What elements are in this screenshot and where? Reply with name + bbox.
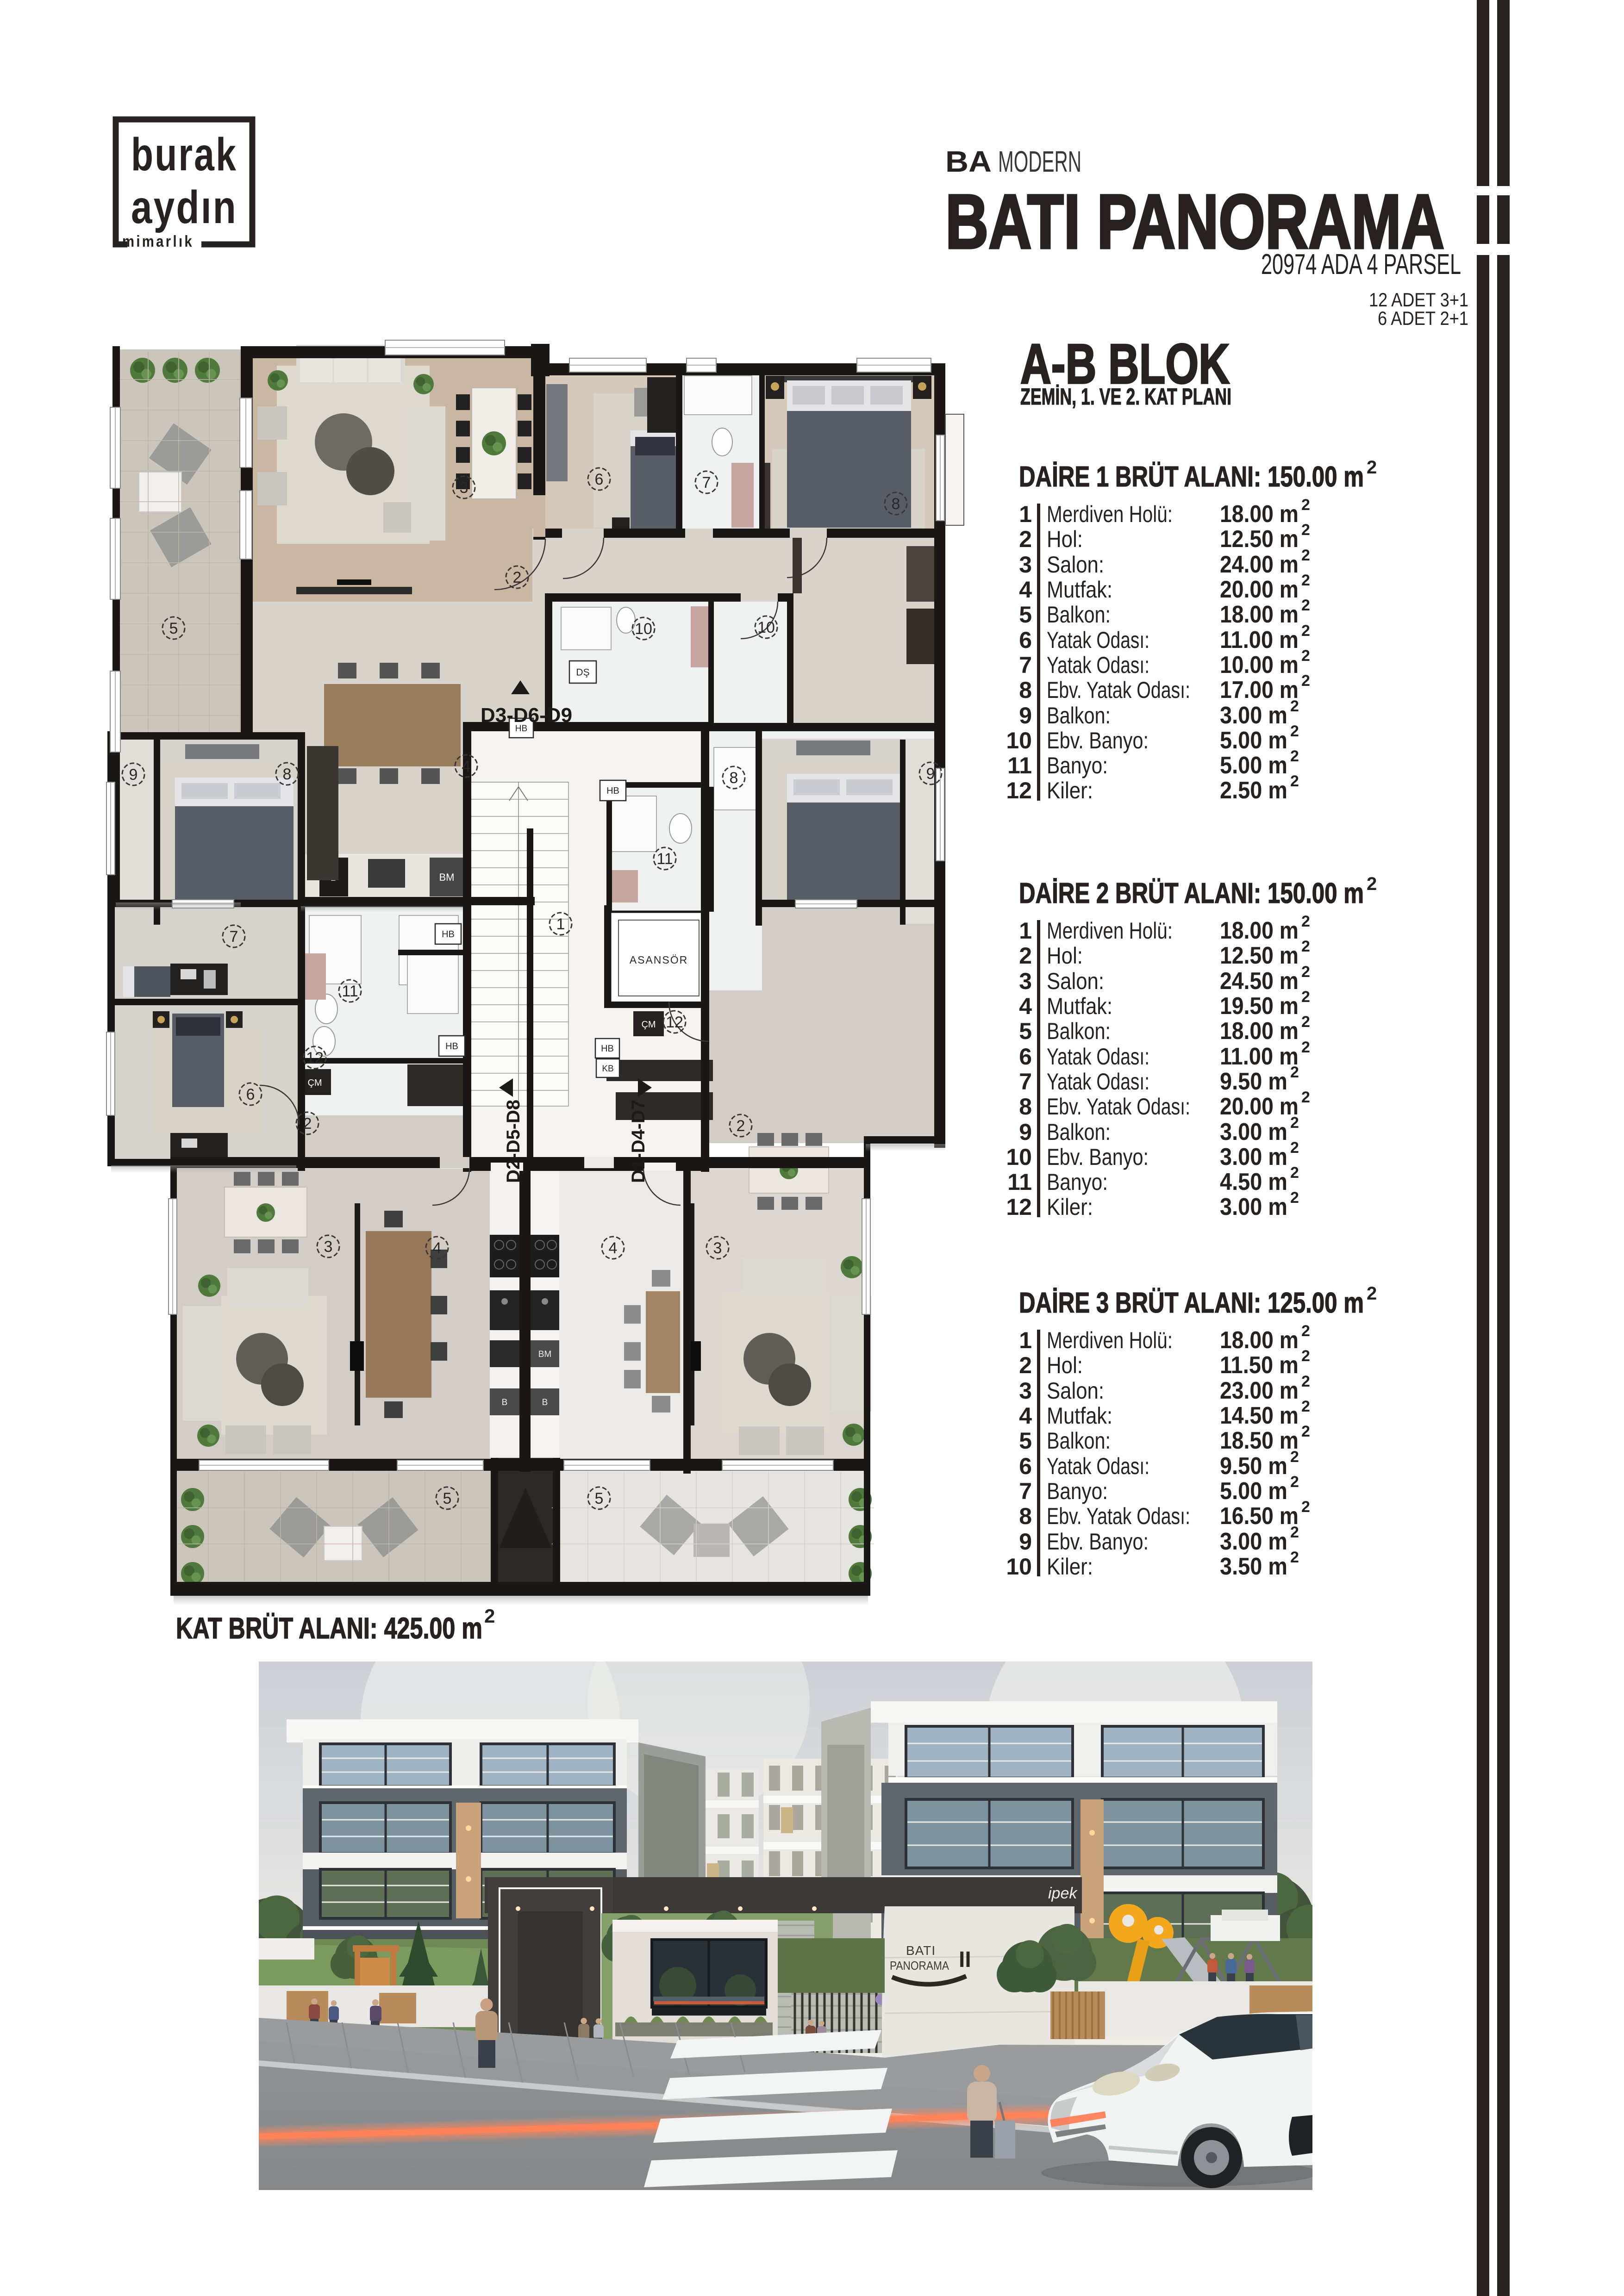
svg-text:Ebv. Banyo:: Ebv. Banyo: bbox=[1047, 728, 1149, 753]
svg-text:Merdiven Holü:: Merdiven Holü: bbox=[1047, 1327, 1173, 1353]
svg-text:8: 8 bbox=[283, 765, 292, 783]
svg-text:2: 2 bbox=[1290, 1473, 1299, 1491]
svg-text:18.00 m: 18.00 m bbox=[1220, 1018, 1299, 1045]
svg-text:HB: HB bbox=[601, 1044, 614, 1054]
svg-text:HB: HB bbox=[442, 929, 455, 940]
svg-text:5.00 m: 5.00 m bbox=[1220, 1478, 1287, 1505]
svg-text:Hol:: Hol: bbox=[1047, 526, 1083, 552]
svg-text:D2-D5-D8: D2-D5-D8 bbox=[503, 1100, 524, 1183]
svg-text:DAİRE 2 BRÜT ALANI: 150.00 m: DAİRE 2 BRÜT ALANI: 150.00 m bbox=[1019, 877, 1364, 909]
svg-text:Yatak Odası:: Yatak Odası: bbox=[1047, 1069, 1149, 1095]
svg-text:2: 2 bbox=[1301, 622, 1310, 640]
svg-text:Kiler:: Kiler: bbox=[1047, 1194, 1093, 1220]
svg-text:2: 2 bbox=[1301, 647, 1310, 665]
svg-text:2: 2 bbox=[1301, 1423, 1310, 1440]
svg-text:2: 2 bbox=[1301, 988, 1310, 1006]
svg-text:Ebv. Banyo:: Ebv. Banyo: bbox=[1047, 1144, 1149, 1170]
svg-text:BM: BM bbox=[538, 1350, 552, 1359]
svg-text:24.50 m: 24.50 m bbox=[1220, 968, 1299, 995]
svg-text:2: 2 bbox=[1301, 1013, 1310, 1031]
svg-text:8: 8 bbox=[1019, 1094, 1032, 1120]
svg-text:9: 9 bbox=[926, 765, 935, 783]
svg-text:HB: HB bbox=[445, 1041, 458, 1052]
svg-text:20.00 m: 20.00 m bbox=[1220, 576, 1299, 603]
svg-text:Banyo:: Banyo: bbox=[1047, 753, 1108, 778]
svg-text:2: 2 bbox=[303, 1115, 312, 1132]
svg-text:Mutfak:: Mutfak: bbox=[1047, 577, 1112, 603]
svg-text:5: 5 bbox=[443, 1490, 452, 1507]
svg-text:2: 2 bbox=[737, 1117, 745, 1135]
svg-text:2: 2 bbox=[1301, 1498, 1310, 1516]
svg-text:Ebv. Yatak Odası:: Ebv. Yatak Odası: bbox=[1047, 677, 1190, 703]
svg-text:Mutfak:: Mutfak: bbox=[1047, 1403, 1112, 1429]
svg-text:4: 4 bbox=[433, 1239, 442, 1257]
svg-text:Hol:: Hol: bbox=[1047, 1352, 1083, 1378]
svg-text:10: 10 bbox=[1006, 1144, 1032, 1170]
svg-text:7: 7 bbox=[1019, 1478, 1032, 1504]
svg-text:BATI: BATI bbox=[906, 1943, 936, 1958]
svg-text:2: 2 bbox=[1290, 1549, 1299, 1566]
svg-text:2: 2 bbox=[1301, 913, 1310, 930]
svg-text:ÇM: ÇM bbox=[641, 1020, 656, 1030]
svg-text:2: 2 bbox=[1290, 1524, 1299, 1541]
svg-text:2: 2 bbox=[1019, 526, 1032, 552]
svg-text:2: 2 bbox=[1301, 1322, 1310, 1340]
svg-text:Salon:: Salon: bbox=[1047, 552, 1104, 578]
svg-text:10: 10 bbox=[635, 620, 652, 638]
svg-text:ASANSÖR: ASANSÖR bbox=[630, 954, 688, 966]
svg-text:5.00 m: 5.00 m bbox=[1220, 727, 1287, 754]
svg-text:2: 2 bbox=[1301, 963, 1310, 981]
svg-text:2: 2 bbox=[1290, 1114, 1299, 1132]
svg-text:24.00 m: 24.00 m bbox=[1220, 551, 1299, 578]
svg-text:Balkon:: Balkon: bbox=[1047, 602, 1111, 628]
svg-text:5: 5 bbox=[1019, 1428, 1032, 1454]
svg-text:HB: HB bbox=[606, 786, 619, 796]
svg-text:2: 2 bbox=[1290, 772, 1299, 790]
svg-text:Yatak Odası:: Yatak Odası: bbox=[1047, 652, 1149, 678]
svg-text:10: 10 bbox=[1006, 728, 1032, 753]
svg-text:12: 12 bbox=[666, 1014, 683, 1031]
svg-text:3: 3 bbox=[1019, 1378, 1032, 1404]
svg-text:11.00 m: 11.00 m bbox=[1220, 1043, 1299, 1070]
svg-text:1: 1 bbox=[1019, 1327, 1032, 1353]
svg-text:5: 5 bbox=[595, 1490, 604, 1507]
svg-text:5: 5 bbox=[1019, 602, 1032, 628]
svg-text:11.00 m: 11.00 m bbox=[1220, 627, 1299, 653]
svg-text:3.00 m: 3.00 m bbox=[1220, 1144, 1287, 1170]
svg-text:Yatak Odası:: Yatak Odası: bbox=[1047, 627, 1149, 653]
svg-text:2: 2 bbox=[1290, 747, 1299, 765]
svg-text:Banyo:: Banyo: bbox=[1047, 1169, 1108, 1195]
svg-text:1: 1 bbox=[1019, 501, 1032, 527]
svg-text:3.00 m: 3.00 m bbox=[1220, 1194, 1287, 1220]
svg-text:10.00 m: 10.00 m bbox=[1220, 652, 1299, 678]
svg-text:2: 2 bbox=[1301, 1089, 1310, 1106]
svg-text:Salon:: Salon: bbox=[1047, 968, 1104, 994]
svg-text:4: 4 bbox=[1019, 577, 1032, 603]
svg-text:2: 2 bbox=[1301, 1373, 1310, 1390]
svg-text:KB: KB bbox=[602, 1064, 613, 1074]
svg-text:2: 2 bbox=[1290, 697, 1299, 715]
svg-text:BA: BA bbox=[945, 145, 992, 178]
svg-text:BM: BM bbox=[439, 871, 455, 883]
svg-text:Balkon:: Balkon: bbox=[1047, 703, 1111, 728]
svg-text:2: 2 bbox=[1019, 1352, 1032, 1378]
svg-text:5.00 m: 5.00 m bbox=[1220, 752, 1287, 779]
svg-text:Merdiven Holü:: Merdiven Holü: bbox=[1047, 918, 1173, 944]
svg-text:12.50 m: 12.50 m bbox=[1220, 942, 1299, 969]
svg-text:D3-D6-D9: D3-D6-D9 bbox=[481, 704, 572, 727]
svg-text:3: 3 bbox=[460, 479, 468, 497]
svg-text:Salon:: Salon: bbox=[1047, 1378, 1104, 1404]
svg-text:4: 4 bbox=[609, 1239, 618, 1257]
svg-text:Ebv. Yatak Odası:: Ebv. Yatak Odası: bbox=[1047, 1503, 1190, 1529]
svg-text:6: 6 bbox=[595, 471, 604, 488]
svg-text:9.50 m: 9.50 m bbox=[1220, 1453, 1287, 1480]
svg-text:6: 6 bbox=[1019, 627, 1032, 653]
svg-text:3: 3 bbox=[713, 1239, 722, 1257]
svg-text:Kiler:: Kiler: bbox=[1047, 778, 1093, 803]
svg-text:18.00 m: 18.00 m bbox=[1220, 501, 1299, 528]
svg-text:9.50 m: 9.50 m bbox=[1220, 1068, 1287, 1095]
svg-text:3: 3 bbox=[1019, 968, 1032, 994]
svg-text:3: 3 bbox=[324, 1238, 333, 1256]
svg-text:mimarlık: mimarlık bbox=[122, 233, 194, 250]
svg-text:2: 2 bbox=[1019, 943, 1032, 969]
svg-text:11: 11 bbox=[1007, 753, 1032, 778]
svg-text:9: 9 bbox=[1019, 1119, 1032, 1145]
svg-text:12.50 m: 12.50 m bbox=[1220, 526, 1299, 553]
svg-text:2: 2 bbox=[1290, 1064, 1299, 1081]
svg-text:Kiler:: Kiler: bbox=[1047, 1554, 1093, 1580]
svg-text:18.50 m: 18.50 m bbox=[1220, 1427, 1299, 1454]
svg-text:2: 2 bbox=[1301, 938, 1310, 955]
svg-text:19.50 m: 19.50 m bbox=[1220, 993, 1299, 1020]
svg-text:3.50 m: 3.50 m bbox=[1220, 1553, 1287, 1580]
svg-text:10: 10 bbox=[1006, 1554, 1032, 1580]
svg-text:KAT BRÜT ALANI: 425.00 m: KAT BRÜT ALANI: 425.00 m bbox=[176, 1612, 482, 1645]
svg-text:18.00 m: 18.00 m bbox=[1220, 601, 1299, 628]
svg-text:Merdiven Holü:: Merdiven Holü: bbox=[1047, 501, 1173, 527]
svg-text:Balkon:: Balkon: bbox=[1047, 1018, 1111, 1044]
svg-text:18.00 m: 18.00 m bbox=[1220, 1327, 1299, 1354]
svg-text:3: 3 bbox=[1019, 552, 1032, 578]
svg-text:2: 2 bbox=[484, 1605, 495, 1627]
svg-text:2: 2 bbox=[1367, 874, 1377, 894]
svg-text:5: 5 bbox=[1019, 1018, 1032, 1044]
svg-text:2: 2 bbox=[1367, 1283, 1377, 1304]
svg-text:23.00 m: 23.00 m bbox=[1220, 1377, 1299, 1404]
svg-text:3.00 m: 3.00 m bbox=[1220, 702, 1287, 729]
svg-text:II: II bbox=[959, 1948, 971, 1972]
svg-text:2: 2 bbox=[1301, 496, 1310, 514]
svg-text:2: 2 bbox=[1301, 572, 1310, 589]
svg-text:12: 12 bbox=[1006, 1194, 1032, 1220]
svg-text:20974 ADA 4 PARSEL: 20974 ADA 4 PARSEL bbox=[1261, 249, 1461, 280]
svg-text:burak: burak bbox=[131, 129, 237, 180]
svg-text:12: 12 bbox=[1006, 778, 1032, 803]
svg-text:6: 6 bbox=[1019, 1044, 1032, 1070]
svg-text:9: 9 bbox=[129, 766, 138, 784]
svg-text:12: 12 bbox=[306, 1049, 324, 1067]
svg-text:2: 2 bbox=[1367, 457, 1377, 478]
svg-text:Hol:: Hol: bbox=[1047, 943, 1083, 969]
svg-text:1: 1 bbox=[1019, 918, 1032, 944]
svg-text:1: 1 bbox=[556, 915, 565, 933]
svg-text:8: 8 bbox=[730, 769, 738, 787]
svg-text:Balkon:: Balkon: bbox=[1047, 1119, 1111, 1145]
svg-text:20.00 m: 20.00 m bbox=[1220, 1093, 1299, 1120]
svg-text:4: 4 bbox=[1019, 1403, 1032, 1429]
svg-text:2: 2 bbox=[513, 569, 522, 586]
svg-text:aydın: aydın bbox=[131, 181, 237, 233]
svg-text:8: 8 bbox=[1019, 677, 1032, 703]
svg-text:2: 2 bbox=[1301, 521, 1310, 539]
svg-text:11: 11 bbox=[656, 850, 673, 868]
svg-text:6 ADET 2+1: 6 ADET 2+1 bbox=[1378, 307, 1468, 329]
svg-text:9: 9 bbox=[1019, 1529, 1032, 1555]
svg-text:Ebv. Yatak Odası:: Ebv. Yatak Odası: bbox=[1047, 1094, 1190, 1120]
svg-text:2: 2 bbox=[1290, 1189, 1299, 1207]
svg-text:2: 2 bbox=[1301, 597, 1310, 614]
svg-text:B: B bbox=[542, 1398, 548, 1407]
svg-text:10: 10 bbox=[757, 619, 775, 636]
svg-text:Ebv. Banyo:: Ebv. Banyo: bbox=[1047, 1529, 1149, 1555]
svg-text:7: 7 bbox=[702, 474, 711, 492]
svg-text:ÇM: ÇM bbox=[307, 1078, 322, 1088]
svg-text:16.50 m: 16.50 m bbox=[1220, 1503, 1299, 1530]
svg-text:8: 8 bbox=[1019, 1503, 1032, 1529]
svg-text:2: 2 bbox=[1301, 1039, 1310, 1056]
svg-text:6: 6 bbox=[1019, 1453, 1032, 1479]
svg-text:14.50 m: 14.50 m bbox=[1220, 1402, 1299, 1429]
svg-text:2: 2 bbox=[1290, 1164, 1299, 1182]
svg-text:3.00 m: 3.00 m bbox=[1220, 1528, 1287, 1555]
svg-text:4: 4 bbox=[462, 758, 471, 775]
svg-text:Mutfak:: Mutfak: bbox=[1047, 993, 1112, 1019]
svg-text:Balkon:: Balkon: bbox=[1047, 1428, 1111, 1454]
svg-text:PANORAMA: PANORAMA bbox=[890, 1959, 949, 1972]
svg-text:5: 5 bbox=[169, 620, 178, 637]
svg-text:2: 2 bbox=[1290, 722, 1299, 740]
svg-text:2: 2 bbox=[1301, 1347, 1310, 1365]
svg-text:ipek: ipek bbox=[1048, 1885, 1078, 1902]
svg-text:B: B bbox=[502, 1398, 508, 1407]
svg-text:4: 4 bbox=[1019, 993, 1032, 1019]
svg-text:3.00 m: 3.00 m bbox=[1220, 1119, 1287, 1145]
svg-text:6: 6 bbox=[246, 1086, 255, 1103]
svg-text:ZEMİN, 1. VE 2. KAT PLANI: ZEMİN, 1. VE 2. KAT PLANI bbox=[1020, 384, 1231, 410]
svg-text:DAİRE 1 BRÜT ALANI: 150.00 m: DAİRE 1 BRÜT ALANI: 150.00 m bbox=[1019, 461, 1364, 493]
svg-text:4.50 m: 4.50 m bbox=[1220, 1169, 1287, 1195]
svg-text:2: 2 bbox=[1301, 547, 1310, 564]
svg-text:D1-D4-D7: D1-D4-D7 bbox=[628, 1100, 649, 1183]
svg-text:7: 7 bbox=[1019, 1069, 1032, 1095]
svg-text:2.50 m: 2.50 m bbox=[1220, 777, 1287, 804]
svg-text:2: 2 bbox=[1301, 672, 1310, 690]
svg-text:MODERN: MODERN bbox=[998, 145, 1081, 178]
svg-text:2: 2 bbox=[1290, 1139, 1299, 1157]
svg-text:7: 7 bbox=[1019, 652, 1032, 678]
svg-text:2: 2 bbox=[1290, 1448, 1299, 1466]
svg-text:9: 9 bbox=[1019, 703, 1032, 728]
svg-text:DAİRE 3 BRÜT ALANI: 125.00 m: DAİRE 3 BRÜT ALANI: 125.00 m bbox=[1019, 1287, 1364, 1319]
svg-text:18.00 m: 18.00 m bbox=[1220, 917, 1299, 944]
svg-text:11.50 m: 11.50 m bbox=[1220, 1352, 1299, 1379]
svg-text:17.00 m: 17.00 m bbox=[1220, 677, 1299, 703]
svg-text:7: 7 bbox=[230, 928, 238, 946]
svg-text:Yatak Odası:: Yatak Odası: bbox=[1047, 1044, 1149, 1070]
svg-text:11: 11 bbox=[342, 983, 358, 1000]
svg-text:Yatak Odası:: Yatak Odası: bbox=[1047, 1453, 1149, 1479]
svg-text:DŞ: DŞ bbox=[576, 667, 589, 678]
svg-text:8: 8 bbox=[892, 495, 900, 513]
svg-text:2: 2 bbox=[1301, 1398, 1310, 1415]
svg-text:11: 11 bbox=[1007, 1169, 1032, 1195]
svg-text:Banyo:: Banyo: bbox=[1047, 1478, 1108, 1504]
